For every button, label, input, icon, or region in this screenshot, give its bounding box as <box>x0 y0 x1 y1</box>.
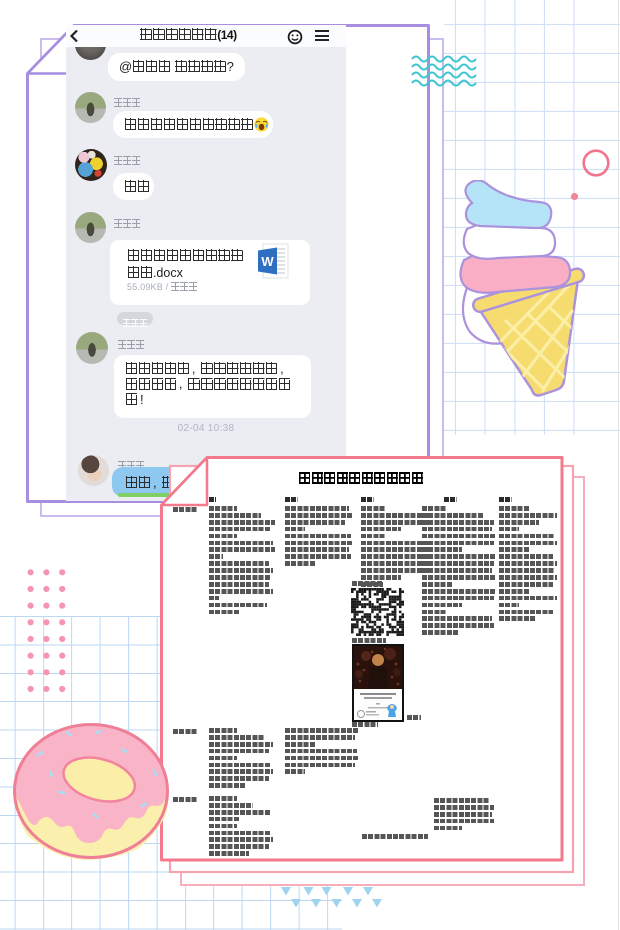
svg-text:W: W <box>261 254 274 269</box>
